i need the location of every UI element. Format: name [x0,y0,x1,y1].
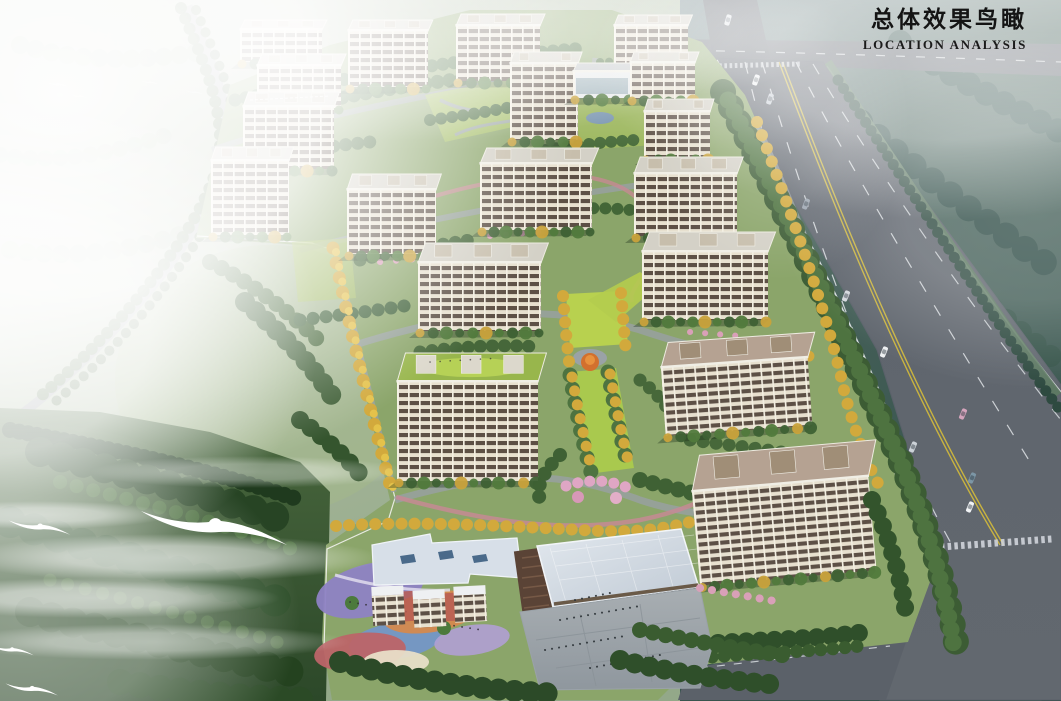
base-shrub-tree [495,329,504,338]
base-shrub-tree [481,478,492,489]
base-shrub-tree [713,318,722,327]
base-shrub-tree [676,318,685,327]
base-shrub-tree [507,328,518,339]
penthouse [770,336,792,353]
base-shrub-tree [455,477,468,490]
page-title-chinese: 总体效果鸟瞰 [863,6,1027,35]
base-shrub-tree [443,478,454,489]
base-shrub-tree [518,478,529,489]
yellow-tree-row [621,293,626,352]
base-shrub-tree [749,318,758,327]
base-shrub-tree [550,228,559,237]
penthouse [504,355,524,373]
blossom-tree [610,492,622,504]
base-shrub-tree [561,227,572,238]
penthouse [770,450,797,474]
base-shrub-tree [632,234,641,243]
base-shrub-tree [406,478,417,489]
base-shrub-tree [699,316,712,329]
title-block: 总体效果鸟瞰 LOCATION ANALYSIS [863,6,1027,53]
base-shrub-tree [519,327,532,340]
playground-tree [345,596,359,610]
base-shrub-tree [651,317,662,328]
red-maple-tree [585,355,595,365]
base-shrub-tree [530,477,543,490]
penthouse [679,342,701,359]
aerial-rendering: 总体效果鸟瞰 LOCATION ANALYSIS [0,0,1061,701]
base-shrub-tree [687,317,698,328]
penthouse [659,234,677,246]
base-shrub-tree [586,228,595,237]
base-shrub-tree [640,318,649,327]
corner-pier [634,174,636,236]
penthouse [461,355,481,373]
penthouse [713,455,740,479]
base-shrub-tree [395,479,404,488]
facade [692,477,877,586]
base-shrub-tree [662,316,675,329]
mist-streak [90,456,410,488]
facade [397,382,538,481]
penthouse [822,445,849,469]
base-shrub-tree [724,317,735,328]
base-shrub-tree [432,479,441,488]
apartment-building [650,332,821,445]
facade [661,358,812,436]
base-shrub-tree [469,479,478,488]
base-shrub-tree [535,329,544,338]
page-subtitle-english: LOCATION ANALYSIS [863,37,1027,53]
yellow-tree-row [563,296,570,370]
blossom-tree [572,491,584,503]
base-shrub-tree [735,316,748,329]
base-shrub-tree [492,477,505,490]
apartment-building [680,440,888,595]
base-shrub-tree [572,226,585,239]
base-shrub-tree [761,317,772,328]
base-shrub-tree [507,479,516,488]
penthouse [726,339,748,356]
corner-pier [642,252,644,320]
rendering-canvas [0,0,1061,701]
base-shrub-tree [417,477,430,490]
